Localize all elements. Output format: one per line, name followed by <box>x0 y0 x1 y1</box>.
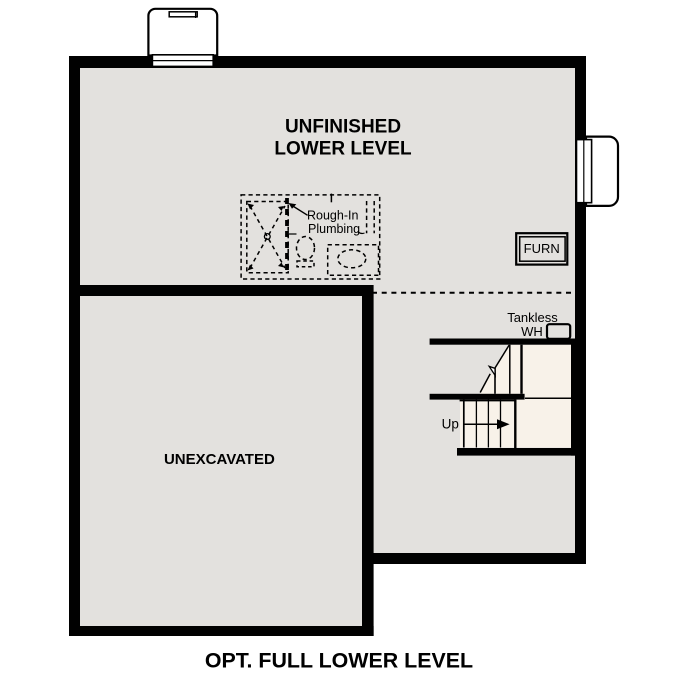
svg-text:UNFINISHED: UNFINISHED <box>285 116 401 137</box>
svg-text:Tankless: Tankless <box>507 310 558 325</box>
svg-text:Rough-In: Rough-In <box>307 209 358 223</box>
svg-text:WH: WH <box>521 324 543 339</box>
svg-text:Plumbing: Plumbing <box>308 222 360 236</box>
svg-text:Up: Up <box>442 416 459 431</box>
svg-text:OPT. FULL LOWER LEVEL: OPT. FULL LOWER LEVEL <box>205 649 473 673</box>
svg-text:FURN: FURN <box>524 241 560 256</box>
svg-text:UNEXCAVATED: UNEXCAVATED <box>164 451 275 468</box>
svg-text:LOWER LEVEL: LOWER LEVEL <box>274 139 412 160</box>
